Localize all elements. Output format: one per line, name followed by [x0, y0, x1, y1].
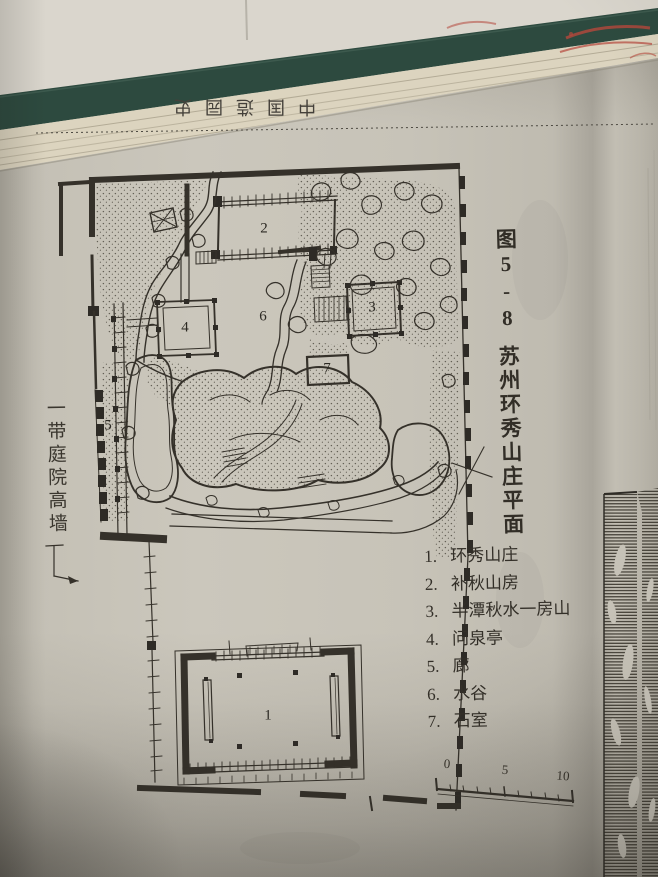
plan-marker-3: 3	[368, 300, 376, 317]
legend-item: 6.水谷	[427, 676, 573, 707]
running-head: 中国造园史	[166, 95, 316, 121]
scale-label-5: 5	[501, 762, 509, 778]
wall-annotation: 一带庭院高墙	[41, 398, 70, 541]
figure-legend: 1.环秀山庄 2.补秋山房 3.半潭秋水一房山 4.问泉亭 5.廊 6.水谷 7…	[424, 539, 573, 734]
plan-marker-7: 7	[323, 361, 331, 378]
book-photo: 中国造园史 图5-8 苏州环秀山庄平面 一带庭院高墙 1.环秀山庄 2.补秋山房…	[0, 0, 658, 877]
plan-marker-6: 6	[259, 309, 267, 326]
figure-number: 图5-8	[490, 228, 523, 334]
legend-item: 5.廊	[426, 649, 572, 680]
page-graphics	[0, 0, 658, 877]
adjacent-page-drawing	[604, 488, 658, 877]
scale-label-10: 10	[556, 768, 570, 785]
legend-item: 4.问泉亭	[426, 621, 572, 652]
plan-marker-4: 4	[181, 320, 189, 337]
figure-title: 苏州环秀山庄平面	[493, 345, 528, 538]
plan-marker-2: 2	[260, 221, 268, 238]
legend-item: 3.半潭秋水一房山	[425, 594, 571, 625]
legend-item: 1.环秀山庄	[424, 539, 570, 570]
legend-item: 7.石室	[427, 704, 573, 735]
scale-label-0: 0	[443, 756, 451, 772]
plan-marker-1: 1	[264, 708, 272, 725]
plan-marker-5: 5	[104, 418, 112, 435]
legend-item: 2.补秋山房	[425, 566, 571, 597]
